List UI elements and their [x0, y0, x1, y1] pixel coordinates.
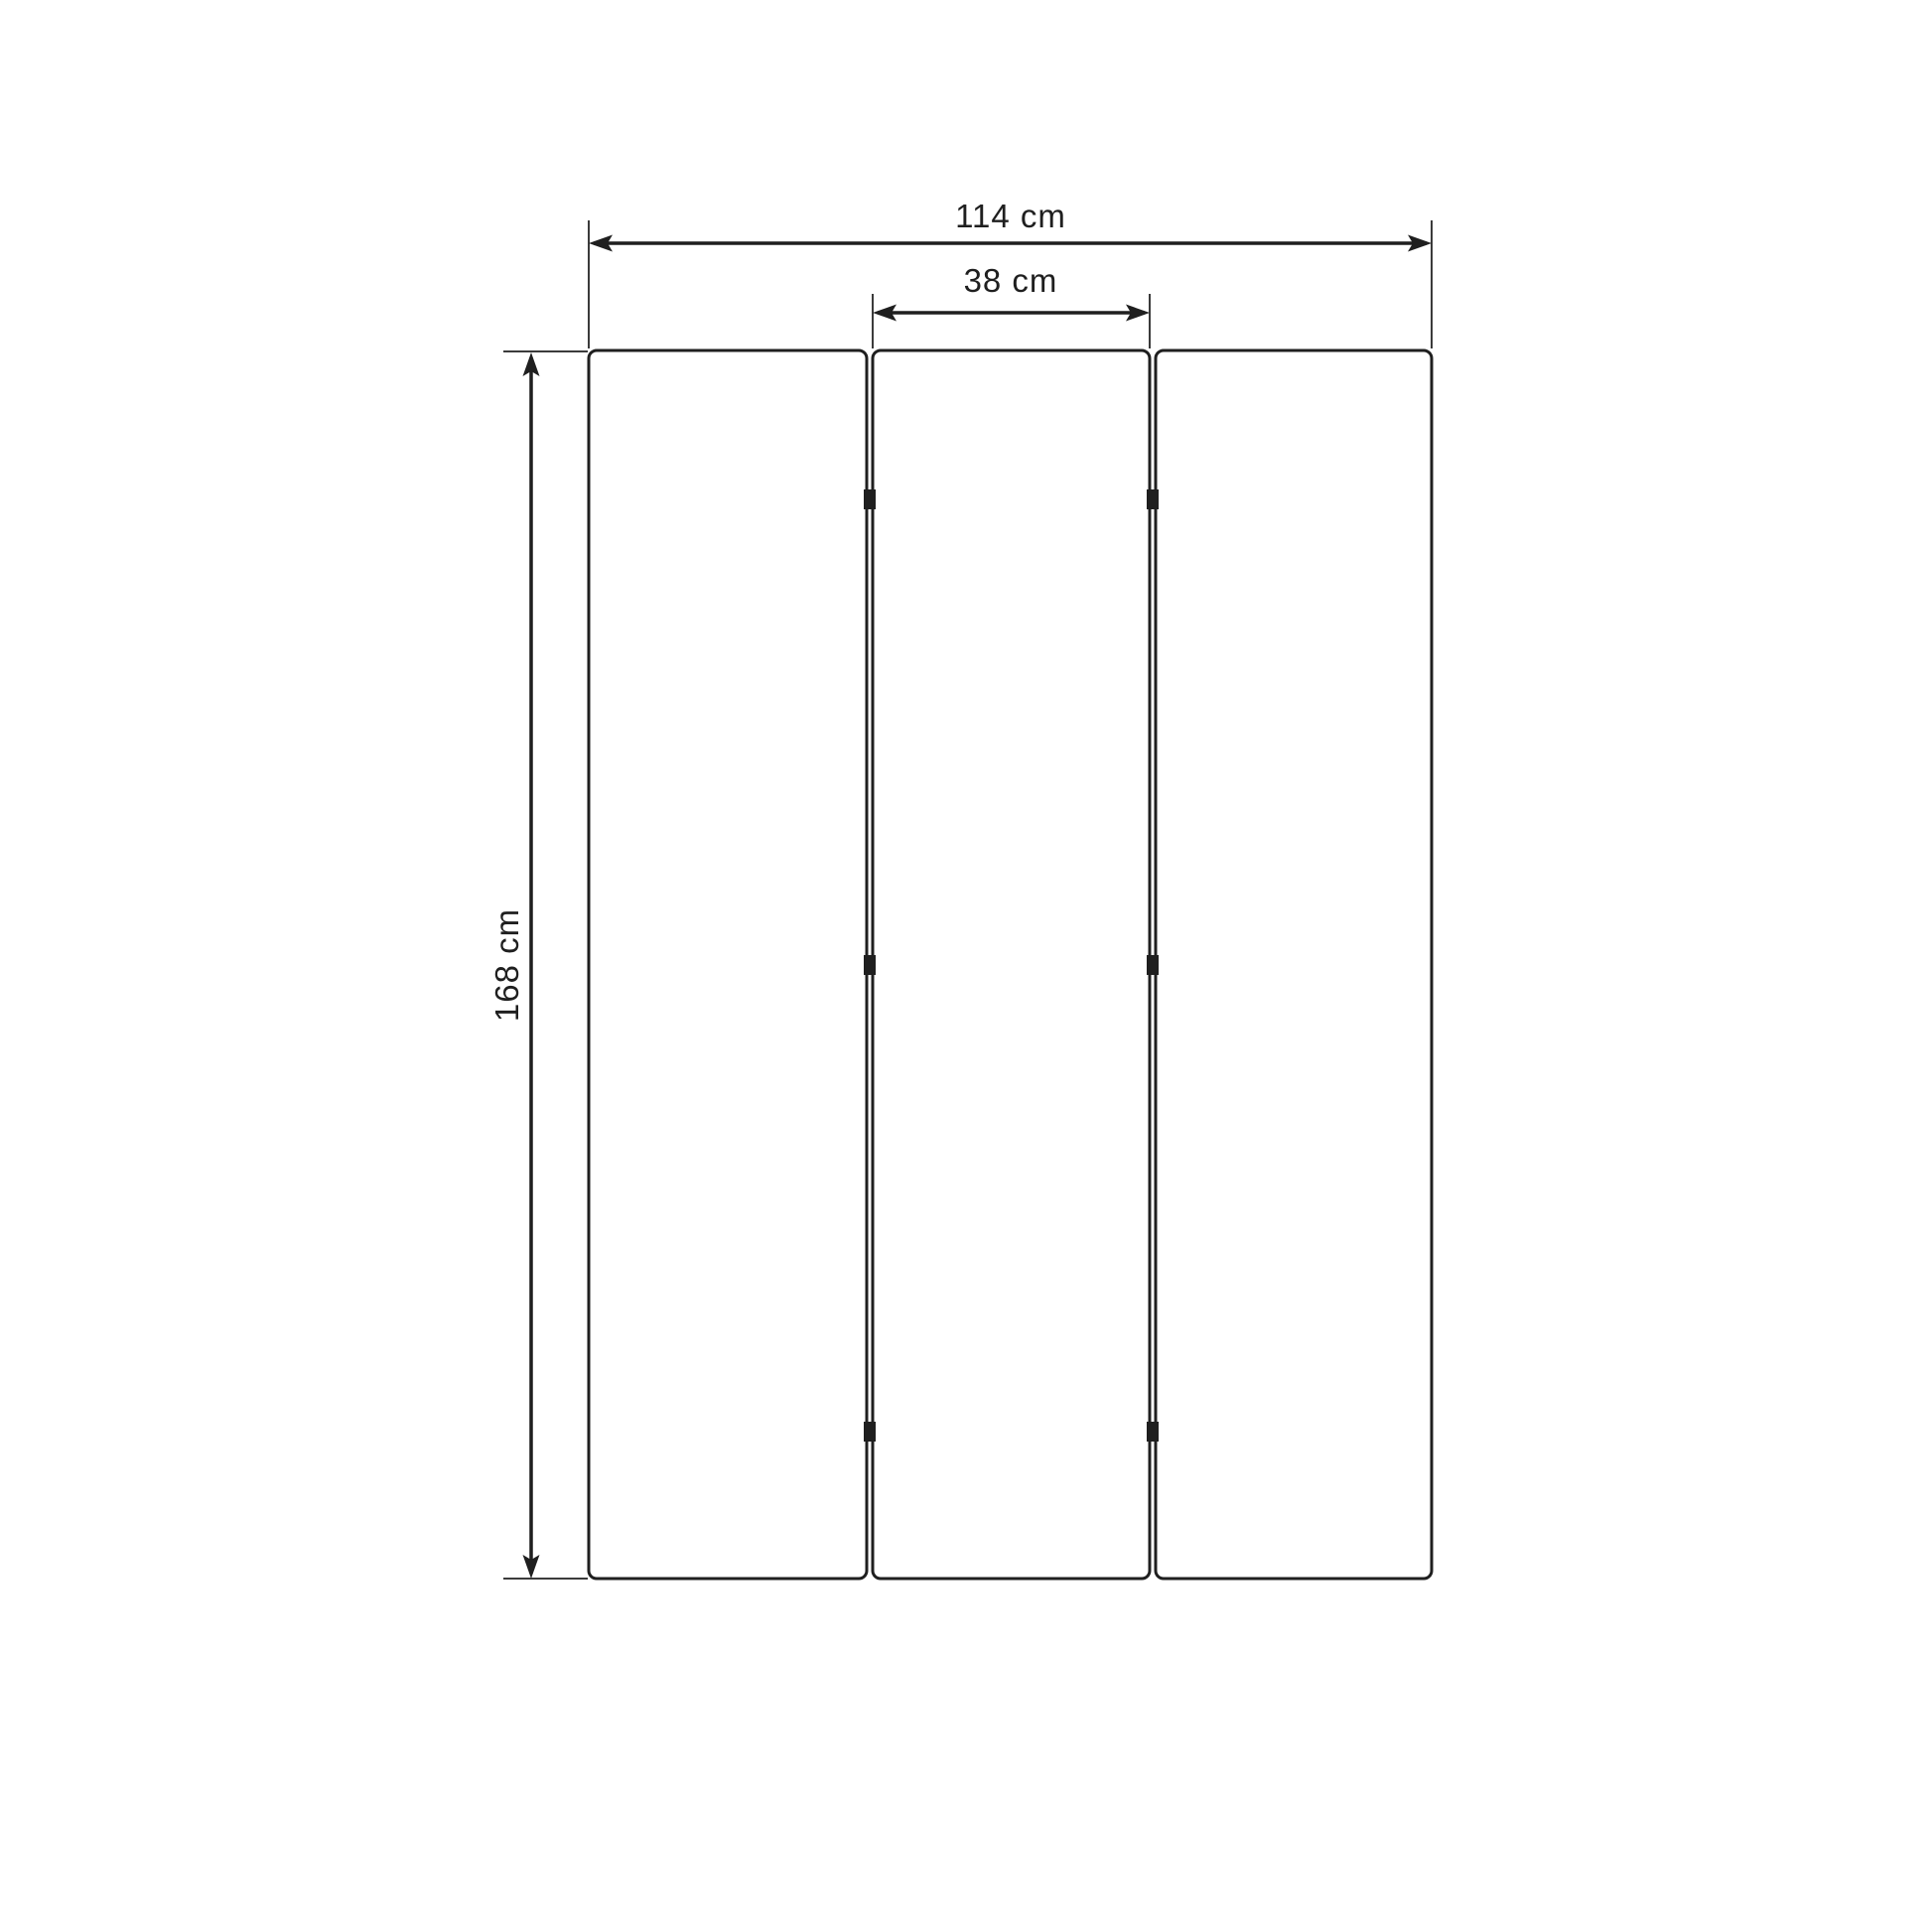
total-width-label: 114 cm	[955, 198, 1066, 234]
height-dimension: 168 cm	[488, 351, 588, 1579]
folding-screen-dimension-drawing: 114 cm 38 cm 168 cm	[0, 0, 1932, 1932]
panel-width-label: 38 cm	[964, 262, 1058, 299]
hinge-mark	[1147, 955, 1159, 975]
hinge-mark	[1147, 489, 1159, 509]
hinge-mark	[864, 1422, 876, 1442]
panels-group	[589, 350, 1432, 1579]
height-label: 168 cm	[488, 908, 525, 1022]
hinge-mark	[864, 955, 876, 975]
hinge-mark	[1147, 1422, 1159, 1442]
panel-left	[589, 350, 867, 1579]
dimension-drawing-canvas: 114 cm 38 cm 168 cm	[0, 0, 1932, 1932]
panel-center	[873, 350, 1150, 1579]
hinge-mark	[864, 489, 876, 509]
panel-width-dimension: 38 cm	[873, 262, 1150, 348]
panel-right	[1156, 350, 1432, 1579]
